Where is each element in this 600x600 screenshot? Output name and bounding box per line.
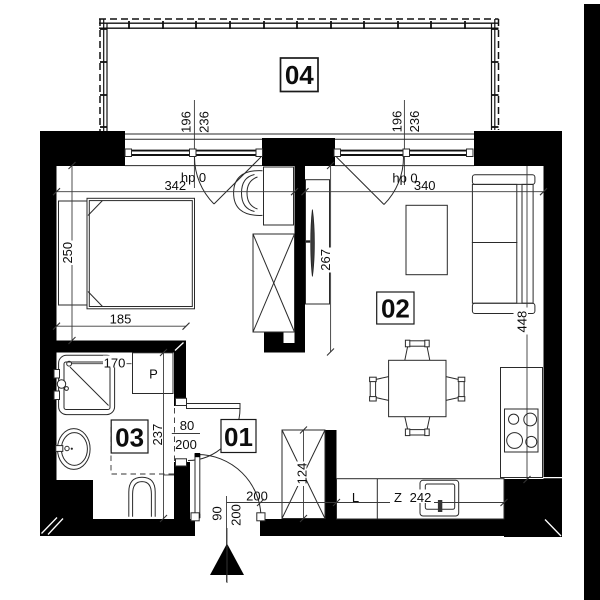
svg-text:124: 124 [294,463,309,485]
svg-text:236: 236 [197,111,212,133]
svg-text:185: 185 [110,312,132,327]
svg-text:80: 80 [180,418,194,433]
svg-text:170: 170 [104,355,126,370]
svg-text:448: 448 [515,311,530,333]
svg-text:236: 236 [407,111,422,133]
svg-text:hp 0: hp 0 [392,171,417,186]
svg-text:237: 237 [150,424,165,446]
svg-text:200: 200 [229,504,244,526]
svg-text:02: 02 [381,294,410,324]
svg-text:200: 200 [175,437,197,452]
svg-text:P: P [149,366,158,381]
svg-text:Z: Z [394,490,402,505]
svg-text:hp 0: hp 0 [181,170,206,185]
svg-text:200: 200 [246,489,268,504]
svg-text:04: 04 [285,60,314,90]
svg-text:01: 01 [224,422,253,452]
svg-text:250: 250 [60,242,75,264]
svg-text:90: 90 [210,506,225,520]
svg-text:242: 242 [410,490,432,505]
svg-text:196: 196 [179,111,194,133]
svg-text:03: 03 [115,422,144,452]
svg-text:267: 267 [318,249,333,271]
svg-text:196: 196 [390,111,405,133]
